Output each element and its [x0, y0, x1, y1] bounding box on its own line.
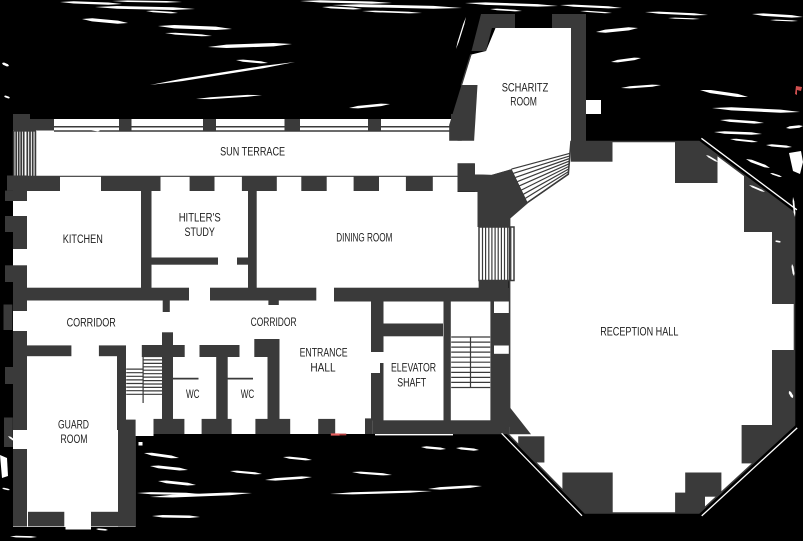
- svg-text:HITLER'S: HITLER'S: [179, 213, 221, 225]
- svg-text:WC: WC: [241, 389, 255, 401]
- svg-text:ROOM: ROOM: [510, 96, 537, 108]
- svg-text:ENTRANCE: ENTRANCE: [300, 348, 348, 360]
- svg-text:GUARD: GUARD: [58, 420, 89, 432]
- svg-text:CORRIDOR: CORRIDOR: [251, 317, 297, 329]
- svg-text:SUN TERRACE: SUN TERRACE: [220, 146, 285, 158]
- svg-text:CORRIDOR: CORRIDOR: [67, 318, 116, 330]
- svg-text:SHAFT: SHAFT: [397, 378, 426, 390]
- svg-text:RECEPTION HALL: RECEPTION HALL: [600, 327, 679, 339]
- svg-text:HALL: HALL: [310, 363, 336, 375]
- svg-text:WC: WC: [186, 389, 200, 401]
- svg-text:DINING ROOM: DINING ROOM: [336, 233, 392, 245]
- svg-text:SCHARITZ: SCHARITZ: [502, 82, 549, 94]
- svg-text:STUDY: STUDY: [184, 227, 215, 239]
- svg-text:KITCHEN: KITCHEN: [63, 234, 103, 246]
- svg-text:ELEVATOR: ELEVATOR: [391, 362, 436, 374]
- svg-text:ROOM: ROOM: [61, 434, 88, 446]
